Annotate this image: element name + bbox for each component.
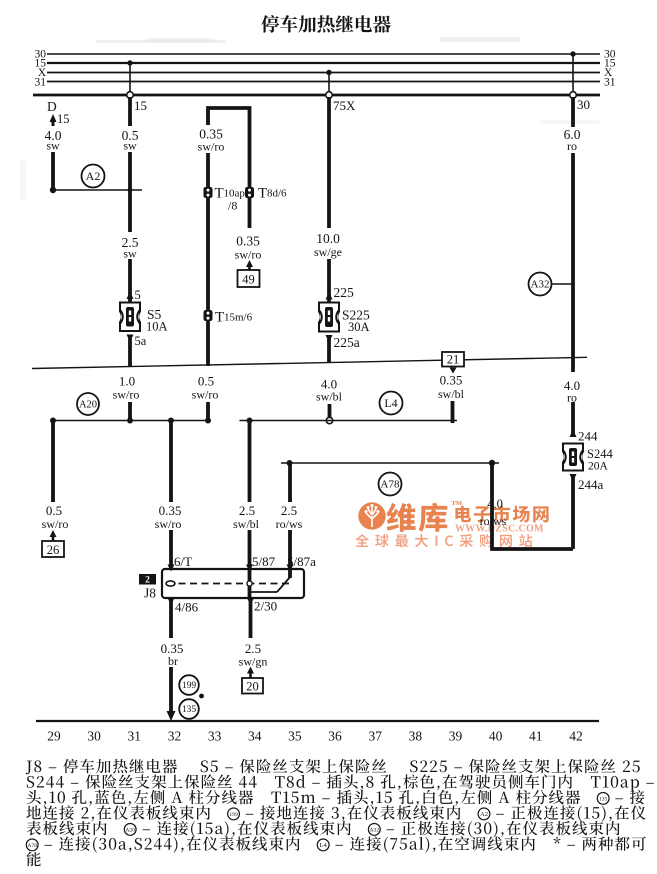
svg-text:ro/ws: ro/ws xyxy=(480,514,507,528)
svg-text:sw: sw xyxy=(123,247,137,261)
svg-text:D: D xyxy=(47,99,57,114)
svg-text:31: 31 xyxy=(35,77,47,89)
svg-text:br: br xyxy=(168,654,178,668)
svg-text:49: 49 xyxy=(242,273,255,287)
svg-text:A32: A32 xyxy=(369,827,379,833)
svg-text:0.5: 0.5 xyxy=(46,503,62,518)
svg-text:sw/ro: sw/ro xyxy=(155,517,182,531)
svg-text:sw: sw xyxy=(46,139,60,153)
svg-text:244: 244 xyxy=(578,429,598,444)
svg-text:15: 15 xyxy=(57,112,70,126)
svg-text:15m/6: 15m/6 xyxy=(224,312,253,324)
svg-text:199: 199 xyxy=(229,812,238,818)
svg-text:31: 31 xyxy=(604,77,616,89)
svg-text:L4: L4 xyxy=(384,396,397,410)
svg-text:sw/bl: sw/bl xyxy=(233,517,260,531)
svg-text:2.5: 2.5 xyxy=(281,503,297,518)
svg-text:S244: S244 xyxy=(587,447,613,461)
svg-text:A78: A78 xyxy=(27,843,37,849)
svg-text:sw/bl: sw/bl xyxy=(438,387,465,401)
svg-text:38: 38 xyxy=(409,729,423,744)
svg-text:20: 20 xyxy=(246,680,259,694)
svg-text:T: T xyxy=(258,186,267,202)
svg-text:T: T xyxy=(215,186,224,202)
svg-text:T: T xyxy=(215,310,224,326)
svg-text:J8: J8 xyxy=(144,586,156,601)
svg-text:/8: /8 xyxy=(228,199,237,213)
svg-text:A32: A32 xyxy=(531,279,550,291)
svg-text:30: 30 xyxy=(87,729,101,744)
svg-text:15: 15 xyxy=(134,98,147,113)
svg-text:41: 41 xyxy=(529,729,543,744)
svg-text:30A: 30A xyxy=(348,320,370,334)
svg-text:199: 199 xyxy=(182,681,197,691)
svg-text:20A: 20A xyxy=(588,461,609,473)
svg-text:8d/6: 8d/6 xyxy=(267,188,287,200)
svg-text:4/86: 4/86 xyxy=(175,600,199,615)
svg-text:244a: 244a xyxy=(578,477,604,492)
svg-text:sw/gn: sw/gn xyxy=(239,655,268,669)
svg-text:37: 37 xyxy=(368,729,382,744)
svg-text:sw/ro: sw/ro xyxy=(198,140,225,154)
svg-text:32: 32 xyxy=(168,729,182,744)
svg-text:30: 30 xyxy=(577,97,590,112)
svg-text:35: 35 xyxy=(288,729,302,744)
svg-text:26: 26 xyxy=(47,543,60,557)
svg-text:ro: ro xyxy=(567,139,577,153)
svg-text:21: 21 xyxy=(447,353,460,367)
svg-text:5: 5 xyxy=(135,288,141,302)
svg-text:2.5: 2.5 xyxy=(239,503,255,518)
svg-text:ro/ws: ro/ws xyxy=(276,517,303,531)
svg-text:0.35: 0.35 xyxy=(440,373,463,388)
svg-text:A20: A20 xyxy=(79,400,97,411)
svg-text:5/87: 5/87 xyxy=(252,554,276,569)
svg-text:sw/ro: sw/ro xyxy=(113,388,140,402)
svg-text:135: 135 xyxy=(599,796,608,802)
svg-text:2: 2 xyxy=(145,576,150,586)
svg-text:75X: 75X xyxy=(333,98,356,113)
svg-text:6/T: 6/T xyxy=(174,554,192,569)
svg-text:A78: A78 xyxy=(381,479,400,491)
svg-text:sw/ge: sw/ge xyxy=(314,245,342,259)
svg-text:40: 40 xyxy=(489,729,503,744)
svg-text:sw/ro: sw/ro xyxy=(42,517,69,531)
svg-text:36: 36 xyxy=(328,729,342,744)
svg-text:10.0: 10.0 xyxy=(316,231,340,246)
svg-text:225: 225 xyxy=(334,285,355,300)
svg-text:5a: 5a xyxy=(135,334,147,348)
svg-text:A2: A2 xyxy=(86,169,101,183)
svg-text:TM: TM xyxy=(452,500,462,507)
svg-text:10A: 10A xyxy=(146,320,168,334)
svg-text:2/30: 2/30 xyxy=(254,599,277,614)
svg-text:sw/ro: sw/ro xyxy=(192,388,219,402)
svg-text:39: 39 xyxy=(449,729,463,744)
svg-text:29: 29 xyxy=(47,729,61,744)
svg-text:33: 33 xyxy=(208,729,222,744)
svg-text:31: 31 xyxy=(128,729,142,744)
svg-text:sw/ro: sw/ro xyxy=(235,248,262,262)
svg-text:4.0: 4.0 xyxy=(487,497,503,511)
svg-text:0.35: 0.35 xyxy=(236,234,260,249)
svg-text:A20: A20 xyxy=(125,827,135,833)
svg-text:34: 34 xyxy=(248,729,262,744)
svg-text:L4: L4 xyxy=(320,842,328,849)
svg-text:0.35: 0.35 xyxy=(159,503,182,518)
svg-text:135: 135 xyxy=(182,705,197,715)
svg-text:A2: A2 xyxy=(480,811,488,818)
svg-text:0.5: 0.5 xyxy=(198,374,214,389)
svg-text:1.0: 1.0 xyxy=(119,374,135,389)
svg-text:sw/bl: sw/bl xyxy=(316,390,343,404)
svg-text:sw: sw xyxy=(123,139,137,153)
svg-text:225a: 225a xyxy=(334,335,360,350)
svg-text:42: 42 xyxy=(569,729,583,744)
